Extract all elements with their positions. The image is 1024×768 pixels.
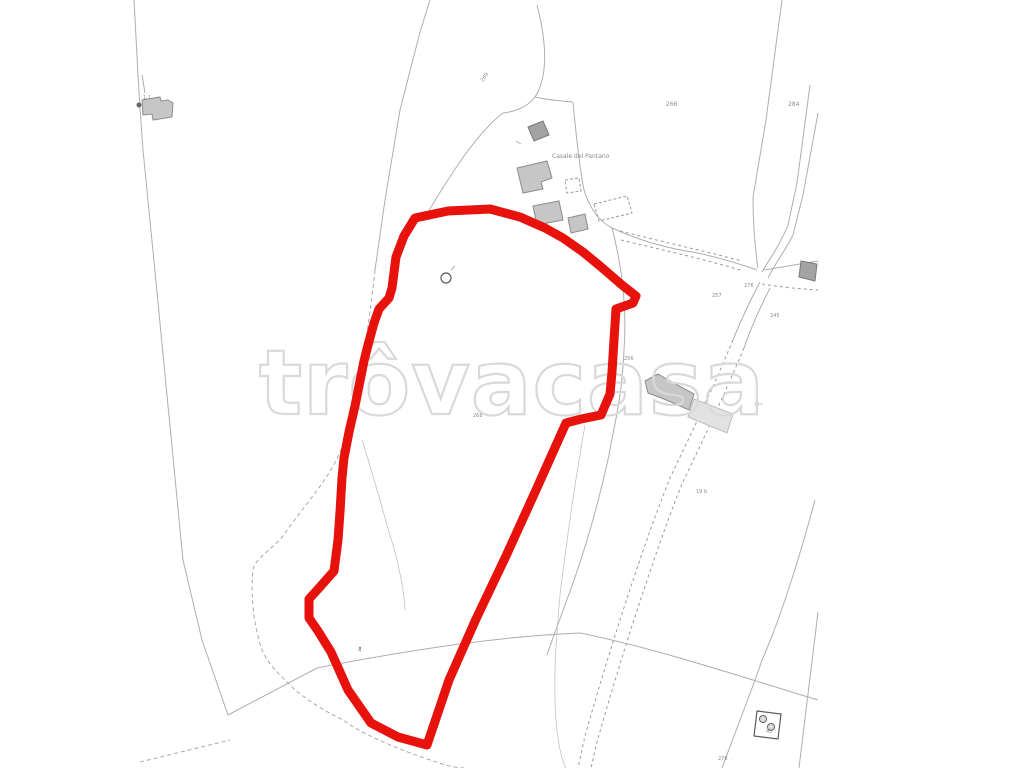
well-tick xyxy=(451,266,455,270)
map-label: 284 xyxy=(788,101,800,108)
top-center-branch xyxy=(535,97,573,102)
road-upper-right-double-a xyxy=(762,85,810,272)
junction-east-dashed xyxy=(762,284,818,290)
watermark: trôvacasa ™ xyxy=(259,331,765,436)
cadastral-map: 1.1269266284Casale del Pantano2572762452… xyxy=(0,0,1024,768)
highlighted-parcel-outline xyxy=(309,209,636,745)
road-upper-right-double-b xyxy=(768,113,818,278)
tree-icon xyxy=(760,716,767,723)
cart-track-dashed-2 xyxy=(621,240,740,270)
casale-tick xyxy=(516,141,521,144)
ruin-outline-large xyxy=(594,196,632,221)
survey-point-icon xyxy=(137,103,142,108)
map-label: 278 xyxy=(718,756,728,762)
far-right-line-2 xyxy=(799,612,818,768)
map-label: 245 xyxy=(770,313,780,319)
casale-building-north xyxy=(528,121,549,141)
ruin-outline-small xyxy=(565,178,581,193)
map-label: 276 xyxy=(744,283,754,289)
casale-building-main xyxy=(517,161,552,193)
watermark-text: trôvacasa xyxy=(259,331,765,436)
upper-left-diagonal-line xyxy=(375,0,430,270)
watermark-tm-mark: ™ xyxy=(752,401,765,416)
building-at-junction xyxy=(799,261,817,281)
map-label: 266 xyxy=(666,101,678,108)
casale-building-south-b xyxy=(568,214,588,233)
well-circle-icon xyxy=(441,273,451,283)
left-boundary-double-segment xyxy=(142,75,145,93)
map-label: 269 xyxy=(480,72,490,83)
cart-track-dashed-1 xyxy=(620,231,742,261)
cadastral-map-screenshot: 1.1269266284Casale del Pantano2572762452… xyxy=(0,0,1024,768)
map-label: 43 xyxy=(766,729,772,735)
map-label: 1.1 xyxy=(143,95,151,101)
map-label: 4 xyxy=(358,648,361,654)
bottom-left-dashed xyxy=(140,740,230,762)
inner-parcel-line-2 xyxy=(555,425,585,768)
map-label: 19 b xyxy=(696,489,707,495)
map-label: Casale del Pantano xyxy=(552,153,610,160)
inner-parcel-line-1 xyxy=(362,440,405,610)
road-upper-right-single xyxy=(753,0,782,268)
map-label: 257 xyxy=(712,293,722,299)
